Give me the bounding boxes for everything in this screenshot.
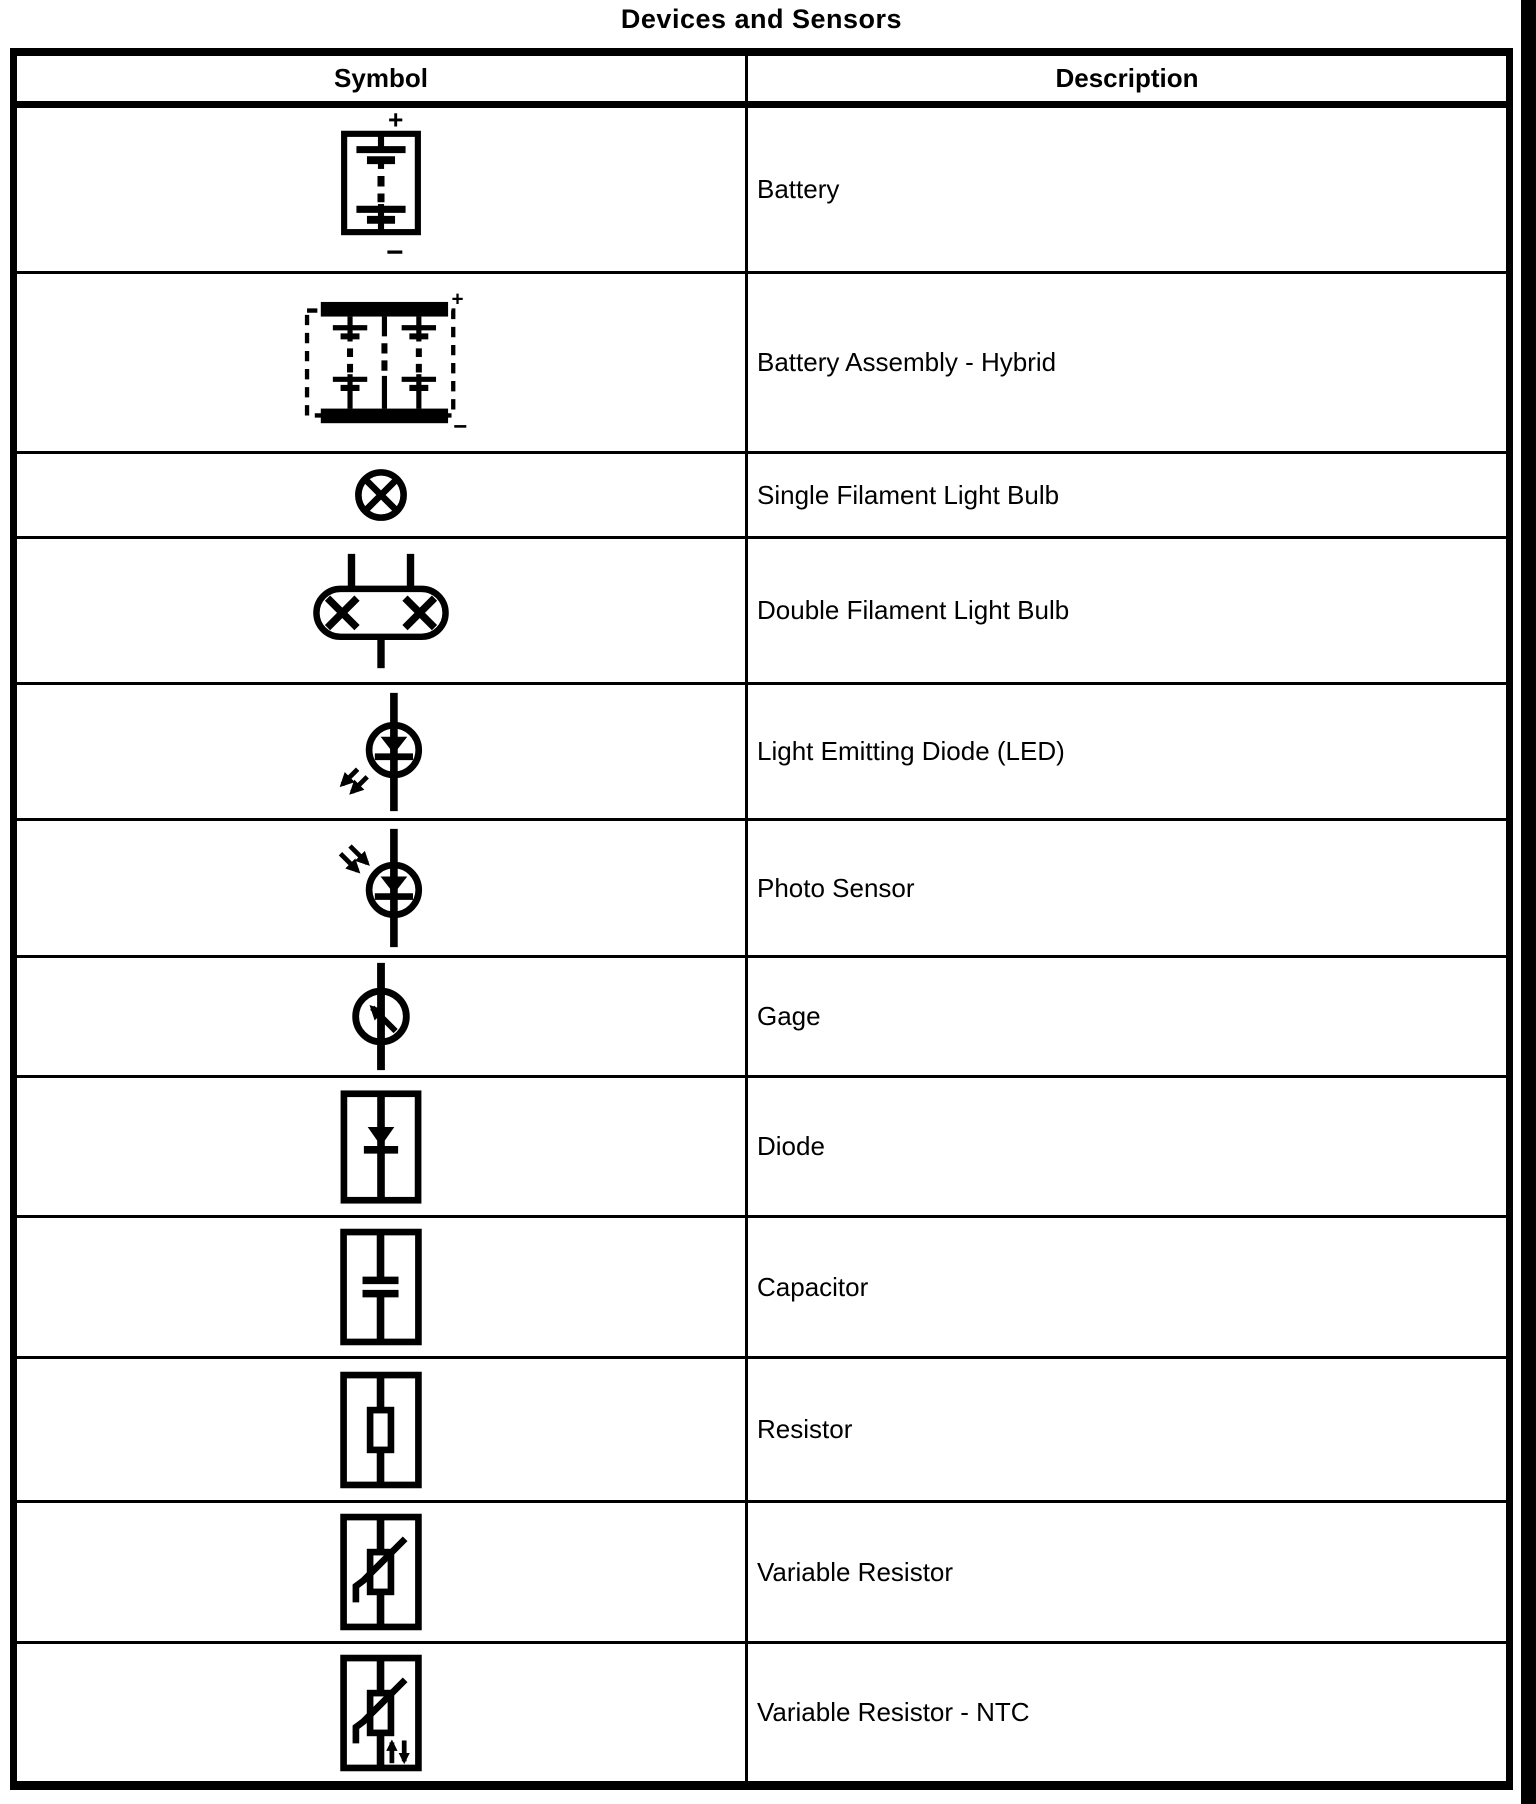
description-text: Resistor — [757, 1414, 852, 1445]
table-row: Diode — [17, 1075, 1506, 1215]
table-row: Light Emitting Diode (LED) — [17, 682, 1506, 818]
table-row: Variable Resistor - NTC — [17, 1641, 1506, 1781]
page-title: Devices and Sensors — [10, 4, 1513, 35]
symbol-cell: + − — [17, 274, 748, 451]
table-row: Single Filament Light Bulb — [17, 451, 1506, 536]
variable-resistor-ntc-icon — [336, 1653, 426, 1773]
description-text: Gage — [757, 1001, 821, 1032]
description-text: Battery Assembly - Hybrid — [757, 347, 1056, 378]
description-cell: Double Filament Light Bulb — [748, 539, 1506, 682]
capacitor-icon — [336, 1227, 426, 1347]
symbol-cell — [17, 454, 748, 536]
table-row: + − Battery — [17, 101, 1506, 271]
description-cell: Variable Resistor - NTC — [748, 1644, 1506, 1781]
table-row: Resistor — [17, 1356, 1506, 1500]
svg-text:+: + — [452, 288, 464, 310]
description-cell: Battery — [748, 108, 1506, 271]
single-filament-light-bulb-icon — [348, 462, 414, 528]
symbol-cell — [17, 1644, 748, 1781]
description-cell: Variable Resistor — [748, 1503, 1506, 1641]
description-text: Battery — [757, 174, 839, 205]
table-row: Double Filament Light Bulb — [17, 536, 1506, 682]
symbol-cell — [17, 821, 748, 955]
symbol-cell — [17, 685, 748, 818]
description-text: Variable Resistor - NTC — [757, 1697, 1030, 1728]
symbols-table: Symbol Description + − Battery — [10, 48, 1513, 1790]
description-cell: Resistor — [748, 1359, 1506, 1500]
scan-edge-artifact — [1521, 0, 1536, 1804]
table-header-row: Symbol Description — [17, 56, 1506, 101]
description-cell: Capacitor — [748, 1218, 1506, 1356]
table-row: Gage — [17, 955, 1506, 1075]
battery-icon: + − — [328, 111, 434, 269]
svg-text:−: − — [386, 235, 403, 268]
symbol-cell — [17, 1503, 748, 1641]
column-header-description: Description — [748, 56, 1506, 101]
description-text: Double Filament Light Bulb — [757, 595, 1069, 626]
description-text: Single Filament Light Bulb — [757, 480, 1059, 511]
symbol-cell — [17, 539, 748, 682]
symbol-cell — [17, 1218, 748, 1356]
description-text: Photo Sensor — [757, 873, 915, 904]
description-cell: Single Filament Light Bulb — [748, 454, 1506, 536]
description-text: Diode — [757, 1131, 825, 1162]
table-row: Photo Sensor — [17, 818, 1506, 955]
light-emitting-diode-icon — [329, 689, 434, 815]
column-header-symbol: Symbol — [17, 56, 748, 101]
symbol-cell — [17, 1078, 748, 1215]
table-row: + − — [17, 271, 1506, 451]
gage-icon — [342, 960, 420, 1073]
description-text: Light Emitting Diode (LED) — [757, 736, 1065, 767]
description-text: Variable Resistor — [757, 1557, 953, 1588]
resistor-icon — [336, 1370, 426, 1490]
description-cell: Photo Sensor — [748, 821, 1506, 955]
symbol-cell — [17, 1359, 748, 1500]
description-text: Capacitor — [757, 1272, 868, 1303]
variable-resistor-icon — [336, 1512, 426, 1632]
description-cell: Light Emitting Diode (LED) — [748, 685, 1506, 818]
symbol-cell — [17, 958, 748, 1075]
table-row: Capacitor — [17, 1215, 1506, 1356]
description-cell: Gage — [748, 958, 1506, 1075]
svg-text:−: − — [453, 413, 467, 438]
description-cell: Diode — [748, 1078, 1506, 1215]
photo-sensor-icon — [329, 825, 434, 951]
double-filament-light-bulb-icon — [298, 549, 464, 673]
symbol-cell: + − — [17, 108, 748, 271]
description-cell: Battery Assembly - Hybrid — [748, 274, 1506, 451]
table-row: Variable Resistor — [17, 1500, 1506, 1641]
diode-icon — [337, 1089, 425, 1205]
battery-assembly-hybrid-icon: + − — [295, 288, 467, 438]
